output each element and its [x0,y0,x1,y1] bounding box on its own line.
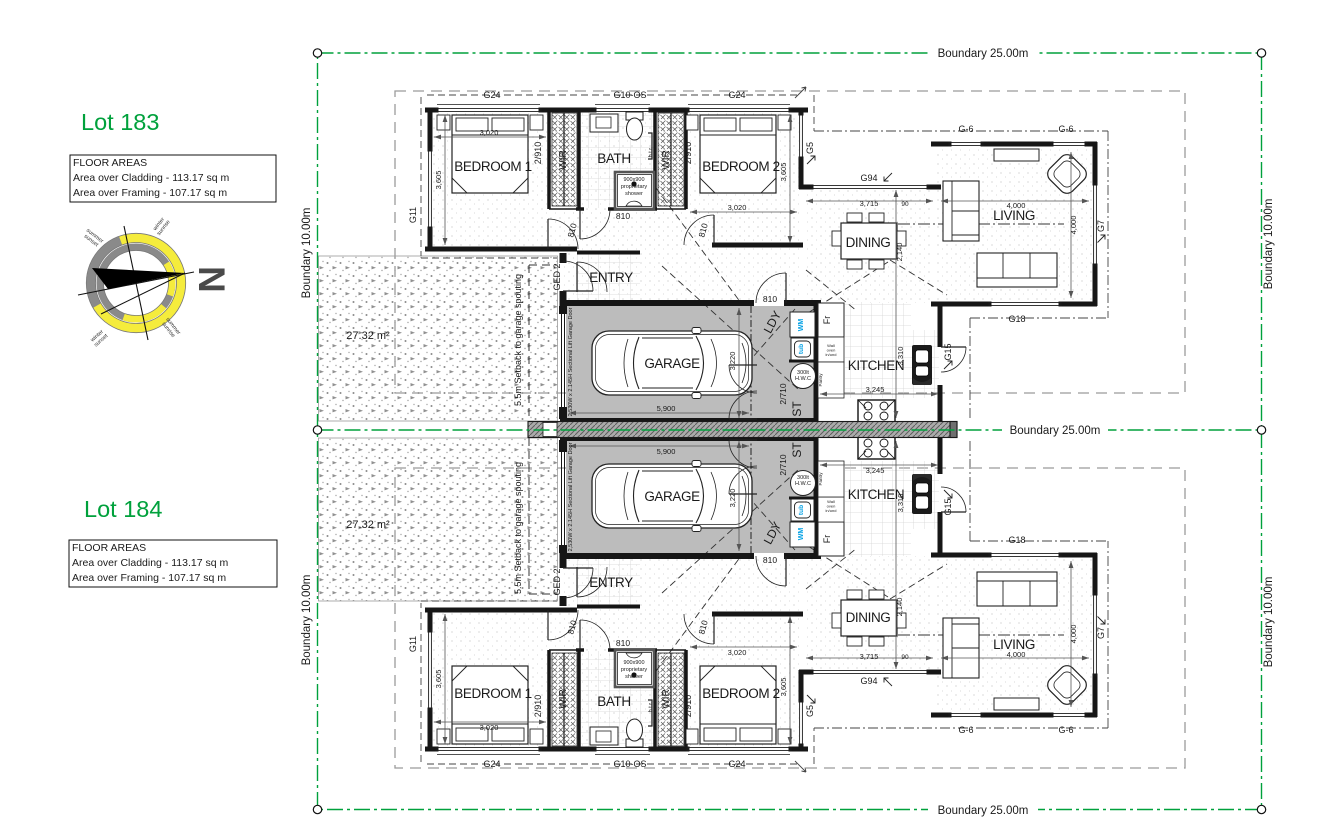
svg-text:BEDROOM 1: BEDROOM 1 [454,686,531,701]
svg-text:2/710: 2/710 [778,383,788,405]
svg-text:DINING: DINING [846,235,891,250]
svg-text:Pantry: Pantry [818,373,823,387]
svg-text:3,715: 3,715 [860,652,879,661]
svg-text:G94: G94 [860,173,877,183]
svg-text:FLOOR AREAS: FLOOR AREAS [72,542,146,554]
svg-text:in/und: in/und [826,352,837,357]
svg-text:G94: G94 [860,676,877,686]
svg-text:900x900: 900x900 [623,660,644,666]
svg-text:G-6: G-6 [1058,725,1073,735]
svg-text:DINING: DINING [846,610,891,625]
svg-text:GED 2: GED 2 [552,263,562,290]
svg-text:4,000: 4,000 [1007,650,1026,659]
svg-text:Area over Cladding - 113.17 sq: Area over Cladding - 113.17 sq m [73,172,229,184]
svg-text:h.t.r.: h.t.r. [648,701,654,712]
svg-text:proprietary: proprietary [621,184,648,190]
svg-text:2,140: 2,140 [895,243,904,262]
svg-text:G5: G5 [805,705,815,717]
svg-text:Fr: Fr [822,316,832,325]
svg-text:Area over Cladding - 113.17 sq: Area over Cladding - 113.17 sq m [72,557,228,569]
svg-text:Fr: Fr [822,535,832,544]
svg-text:N: N [191,266,232,293]
svg-text:3,220: 3,220 [728,489,737,508]
svg-text:in/und: in/und [826,508,837,513]
svg-text:3,020: 3,020 [480,723,499,732]
svg-text:G15: G15 [943,343,953,360]
svg-text:GARAGE: GARAGE [644,489,700,504]
svg-text:Boundary 10.00m: Boundary 10.00m [301,575,313,666]
svg-text:3,310: 3,310 [896,347,905,366]
svg-text:Boundary 25.00m: Boundary 25.00m [1010,425,1101,437]
svg-text:LIVING: LIVING [993,208,1035,223]
svg-text:G24: G24 [728,759,745,769]
svg-text:G24: G24 [728,90,745,100]
svg-text:3,605: 3,605 [779,678,788,697]
svg-text:4,000: 4,000 [1069,216,1078,235]
svg-text:3,605: 3,605 [779,163,788,182]
svg-text:WIR: WIR [661,689,672,708]
svg-text:90: 90 [901,654,909,661]
svg-text:GED 2: GED 2 [552,568,562,595]
svg-text:Lot 183: Lot 183 [81,109,159,135]
svg-text:BEDROOM 2: BEDROOM 2 [702,159,779,174]
svg-text:3,245: 3,245 [866,385,885,394]
svg-text:BEDROOM 1: BEDROOM 1 [454,159,531,174]
svg-text:G11: G11 [408,636,418,652]
svg-text:Boundary 25.00m: Boundary 25.00m [938,805,1029,817]
svg-text:G24: G24 [483,759,500,769]
svg-text:ENTRY: ENTRY [589,575,633,590]
svg-text:3,245: 3,245 [866,466,885,475]
svg-text:WIR: WIR [661,150,672,169]
svg-text:Area over Framing - 107.17 sq: Area over Framing - 107.17 sq m [72,572,226,584]
svg-text:GARAGE: GARAGE [644,356,700,371]
svg-text:900x900: 900x900 [623,177,644,183]
svg-text:FLOOR AREAS: FLOOR AREAS [73,157,147,169]
svg-text:G24: G24 [483,90,500,100]
svg-text:G18: G18 [1008,314,1025,324]
svg-text:h.t.r.: h.t.r. [648,146,654,157]
svg-text:H.W.C: H.W.C [795,481,811,487]
svg-text:810: 810 [616,211,630,221]
svg-text:27.32 m²: 27.32 m² [346,330,390,342]
svg-text:WIR: WIR [558,689,569,708]
svg-text:Lot 184: Lot 184 [84,496,162,522]
svg-text:G5: G5 [805,142,815,154]
svg-text:2/710: 2/710 [778,454,788,476]
svg-text:3,715: 3,715 [860,199,879,208]
svg-text:G7: G7 [1096,220,1106,232]
svg-text:Boundary 25.00m: Boundary 25.00m [938,48,1029,60]
svg-text:3,605: 3,605 [434,670,443,689]
svg-text:ST: ST [790,401,804,417]
svg-text:shower: shower [625,191,643,197]
svg-text:3,020: 3,020 [728,203,747,212]
svg-text:2,530W x 2.145H Sectional Lift: 2,530W x 2.145H Sectional Lift Garage Do… [568,442,574,551]
svg-text:2/910: 2/910 [683,142,693,165]
svg-text:Pantry: Pantry [818,472,823,486]
svg-text:BATH: BATH [597,694,630,709]
svg-text:BATH: BATH [597,151,630,166]
svg-text:2/910: 2/910 [533,695,543,718]
svg-text:Boundary 10.00m: Boundary 10.00m [1263,199,1275,290]
svg-text:90: 90 [901,201,909,208]
svg-text:5,900: 5,900 [657,404,676,413]
svg-text:Boundary 10.00m: Boundary 10.00m [1263,577,1275,668]
svg-text:5.5m Setback to garage spoutin: 5.5m Setback to garage spouting [513,462,523,594]
svg-text:Area over Framing - 107.17 sq: Area over Framing - 107.17 sq m [73,187,227,199]
svg-text:WM: WM [798,319,805,332]
svg-text:G15: G15 [943,498,953,515]
svg-text:G10-OS: G10-OS [613,90,646,100]
svg-text:4,000: 4,000 [1069,625,1078,644]
svg-text:5.5m Setback to garage spoutin: 5.5m Setback to garage spouting [513,274,523,406]
svg-text:27.32 m²: 27.32 m² [346,519,390,531]
svg-text:WM: WM [798,528,805,541]
svg-text:G-6: G-6 [958,124,973,134]
svg-text:2,140: 2,140 [895,598,904,617]
svg-text:G18: G18 [1008,535,1025,545]
svg-text:shower: shower [625,674,643,680]
svg-text:3,020: 3,020 [728,648,747,657]
svg-text:H.W.C: H.W.C [795,376,811,382]
svg-text:G11: G11 [408,207,418,223]
svg-text:2/910: 2/910 [683,695,693,718]
svg-text:WIR: WIR [558,150,569,169]
svg-text:2/910: 2/910 [533,142,543,165]
svg-text:ENTRY: ENTRY [589,270,633,285]
svg-text:5,900: 5,900 [657,447,676,456]
svg-text:G-6: G-6 [1058,124,1073,134]
svg-text:3,310: 3,310 [896,494,905,513]
svg-text:4,000: 4,000 [1007,201,1026,210]
svg-text:Boundary 10.00m: Boundary 10.00m [301,208,313,299]
svg-text:G7: G7 [1096,627,1106,639]
svg-text:3,605: 3,605 [434,171,443,190]
svg-text:tub: tub [798,505,805,515]
svg-text:810: 810 [763,555,777,565]
svg-text:810: 810 [616,638,630,648]
svg-text:tub: tub [798,344,805,354]
svg-text:proprietary: proprietary [621,667,648,673]
svg-text:2,530W x 2.145H Sectional Lift: 2,530W x 2.145H Sectional Lift Garage Do… [568,307,574,416]
svg-text:G-6: G-6 [958,725,973,735]
svg-text:ST: ST [790,442,804,458]
svg-text:3,220: 3,220 [728,352,737,371]
svg-text:3,020: 3,020 [480,128,499,137]
svg-text:810: 810 [763,294,777,304]
svg-text:BEDROOM 2: BEDROOM 2 [702,686,779,701]
svg-text:G10-OS: G10-OS [613,759,646,769]
